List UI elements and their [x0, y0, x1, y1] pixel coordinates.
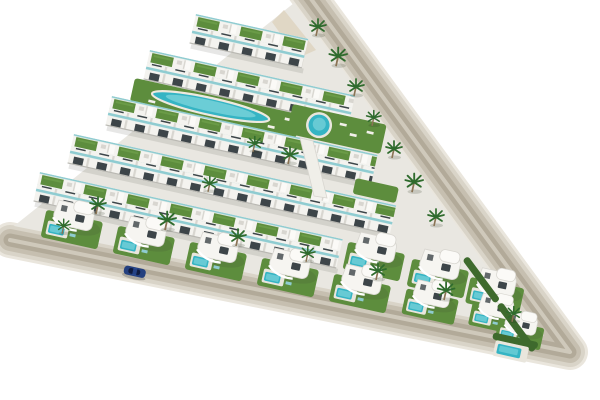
development-aerial-render [0, 0, 600, 400]
render-canvas [0, 0, 600, 400]
